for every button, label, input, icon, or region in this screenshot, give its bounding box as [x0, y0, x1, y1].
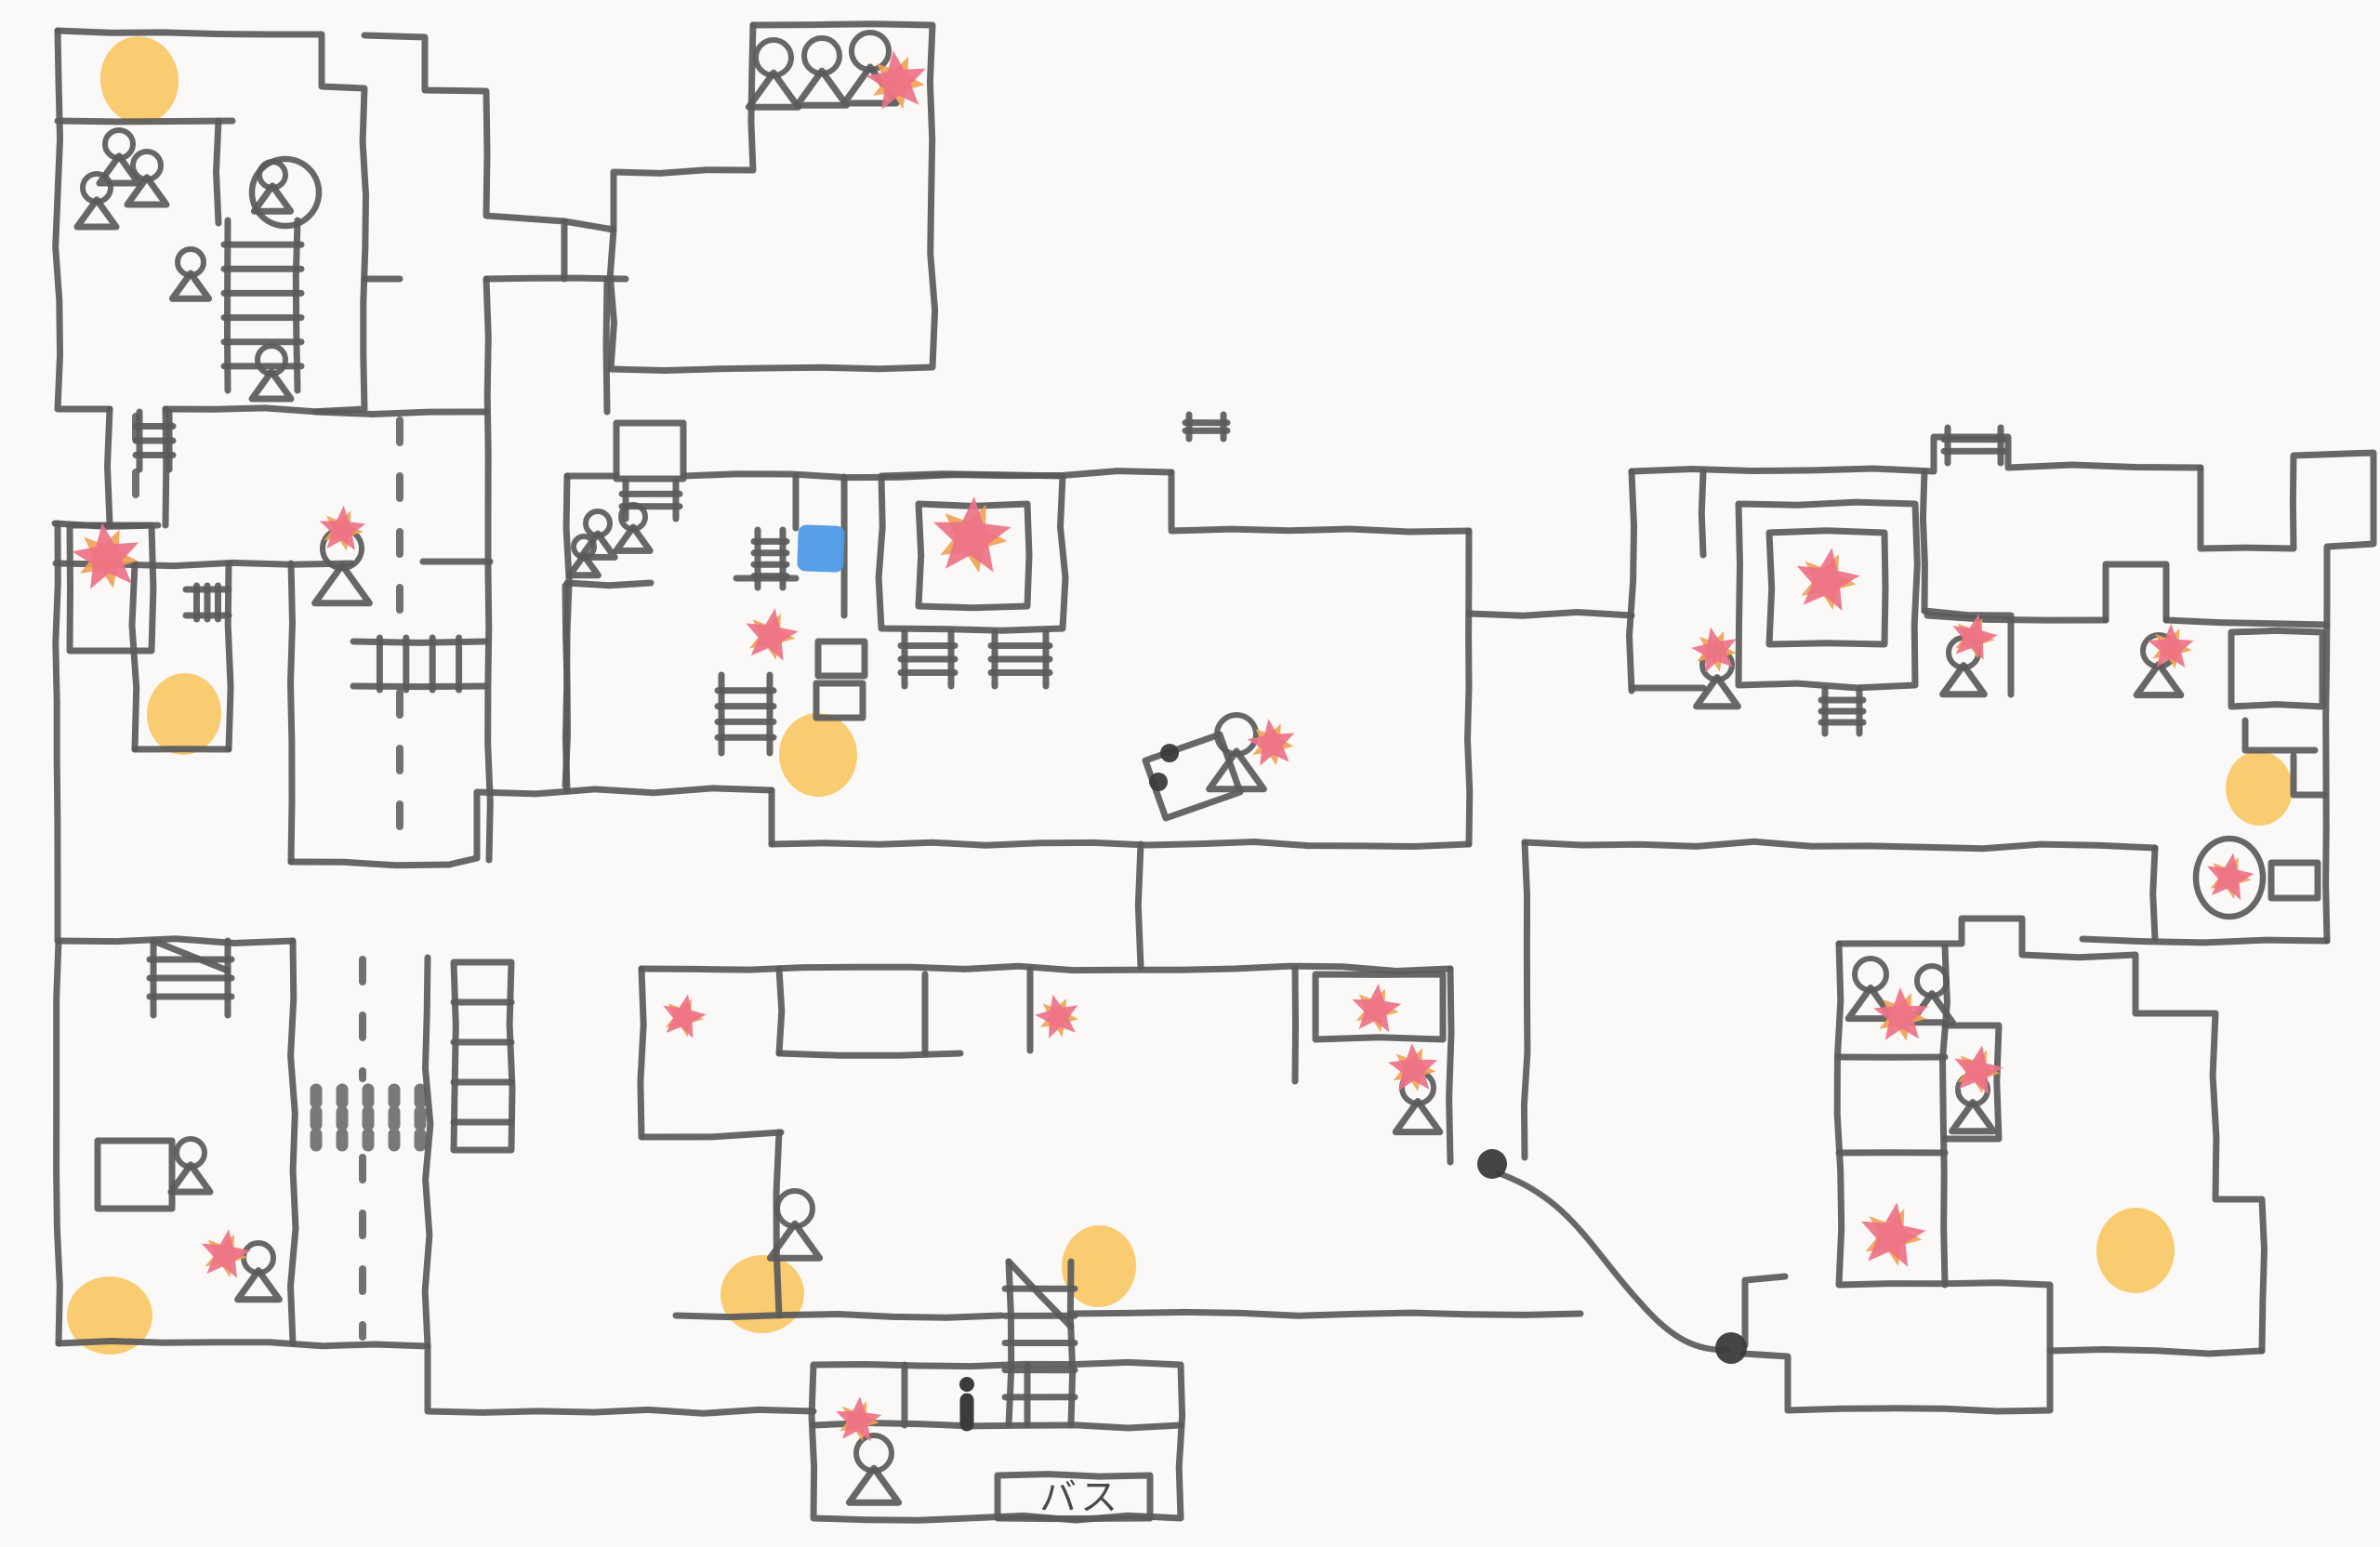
info-icon-dot: [959, 1377, 974, 1392]
wall-line: [1924, 611, 2011, 694]
person-icon: [172, 249, 208, 298]
wall-line: [1743, 1350, 2262, 1412]
room-box: [2231, 630, 2322, 707]
black-dot: [1160, 744, 1179, 762]
wall-line: [1295, 969, 1296, 1081]
wall-line: [316, 412, 486, 415]
star-marker: [1035, 995, 1078, 1038]
star-marker: [1797, 548, 1860, 611]
person-body: [1943, 666, 1985, 694]
info-icon: [959, 1377, 974, 1424]
wall-line: [1469, 613, 1632, 616]
person-body: [172, 273, 208, 298]
person-body: [2136, 665, 2181, 695]
wall-line: [1923, 471, 1924, 611]
ladder-icon: [353, 638, 485, 690]
wall-line: [564, 25, 753, 230]
star-marker: [746, 608, 798, 660]
person-icon: [849, 1435, 898, 1502]
wall-line: [772, 842, 1469, 847]
wall-line: [567, 583, 651, 586]
person-body: [1395, 1102, 1440, 1132]
wall-line: [57, 941, 60, 1343]
wall-line: [1138, 844, 1141, 967]
ladder-icon: [901, 632, 955, 686]
ladder-icon: [718, 675, 773, 753]
wall-line: [641, 966, 1450, 971]
room-box: [98, 1141, 172, 1209]
wall-line: [1630, 471, 1634, 691]
wall-line: [1701, 471, 1703, 555]
wall-line: [291, 563, 293, 862]
star-marker: [663, 995, 707, 1038]
ladder-part: [153, 941, 228, 971]
person-body: [252, 372, 291, 399]
star-marker: [2148, 624, 2193, 668]
wall-line: [779, 969, 782, 1053]
person-icon: [616, 505, 650, 550]
ladder-icon: [136, 412, 173, 469]
person-body: [1697, 678, 1739, 707]
wall-line: [59, 939, 293, 944]
wall-line: [2082, 939, 2327, 943]
person-body: [254, 186, 290, 211]
wall-line: [2153, 848, 2155, 939]
wall-line: [643, 1132, 781, 1137]
wall-line: [2245, 721, 2315, 750]
blue-marker: [797, 524, 845, 573]
person-body: [1952, 1103, 1994, 1131]
person-body: [849, 1468, 898, 1502]
yellow-dot: [718, 1252, 807, 1336]
wall-line: [291, 941, 297, 1343]
person-body: [171, 1165, 210, 1192]
wall-line: [1468, 531, 1470, 844]
ladder-icon: [224, 220, 301, 390]
wall-line: [1071, 1312, 1580, 1316]
wall-line: [641, 969, 643, 1137]
ladder-icon: [622, 482, 680, 519]
room-box: [816, 683, 863, 718]
wall-line: [1632, 437, 2201, 471]
room-box: [616, 423, 683, 479]
person-body: [315, 565, 370, 603]
wall-line: [2166, 620, 2327, 625]
star-marker: [1691, 628, 1737, 673]
wall-line: [565, 476, 569, 790]
wall-line: [364, 35, 564, 279]
wall-line: [1524, 842, 1527, 1157]
room-box: [818, 641, 865, 676]
person-body: [748, 73, 798, 107]
ladder-icon: [150, 941, 231, 1015]
star-marker: [1861, 1202, 1926, 1266]
wall-line: [132, 563, 137, 749]
ladder-part: [353, 641, 485, 642]
star-marker: [2207, 853, 2254, 900]
ladder-icon: [754, 530, 787, 588]
wall-line: [1927, 615, 2106, 620]
black-dot: [1715, 1332, 1747, 1364]
map-canvas: バス: [0, 0, 2380, 1547]
star-shape: [73, 522, 139, 588]
star-marker: [1352, 984, 1401, 1032]
yellow-dot: [2094, 1206, 2176, 1296]
wall-line: [606, 279, 607, 412]
bus-label: バス: [1039, 1476, 1121, 1519]
wall-line: [779, 1053, 960, 1055]
yellow-dot: [777, 711, 860, 799]
person-icon: [171, 1139, 210, 1192]
wall-line: [1745, 1276, 1785, 1345]
wall-line: [59, 1342, 813, 1414]
ladder-icon: [1821, 689, 1863, 734]
ladder-icon: [1005, 1262, 1075, 1424]
person-body: [616, 527, 650, 550]
wall-line: [56, 523, 59, 941]
wall-line: [776, 1132, 779, 1316]
connection-curve: [1499, 1173, 1727, 1350]
hand-drawn-map: バス: [0, 0, 2380, 1547]
person-icon: [748, 40, 798, 107]
black-dot: [1477, 1149, 1507, 1179]
wall-line: [1171, 472, 1469, 532]
star-marker: [1388, 1043, 1437, 1091]
person-icon: [254, 162, 290, 211]
person-body: [238, 1271, 280, 1300]
yellow-dot: [2224, 750, 2294, 827]
ladder-part: [353, 686, 485, 687]
person-icon: [252, 346, 291, 399]
wall-line: [58, 121, 232, 122]
yellow-dot: [143, 669, 226, 759]
ladder-icon: [1944, 428, 2004, 463]
wall-line: [1943, 946, 1948, 1285]
person-icon: [797, 38, 846, 105]
black-dot: [1149, 773, 1168, 791]
wall-line: [1449, 969, 1451, 1162]
wall-line: [676, 1315, 1001, 1318]
wall-line: [108, 409, 111, 523]
wall-line: [486, 279, 490, 860]
wall-line: [217, 121, 219, 223]
ladder-icon: [991, 632, 1050, 686]
wall-line: [2106, 564, 2166, 620]
wall-line: [1525, 841, 2155, 849]
ladder-icon: [186, 586, 229, 619]
yellow-dot: [96, 32, 184, 128]
person-body: [797, 71, 846, 105]
person-body: [77, 200, 116, 227]
star-marker: [202, 1229, 251, 1278]
wall-line: [291, 788, 772, 866]
star-marker: [73, 522, 139, 588]
room-box: [2271, 863, 2318, 898]
wall-line: [2294, 756, 2324, 795]
ladder-icon: [1185, 415, 1227, 439]
wall-line: [425, 958, 430, 1346]
